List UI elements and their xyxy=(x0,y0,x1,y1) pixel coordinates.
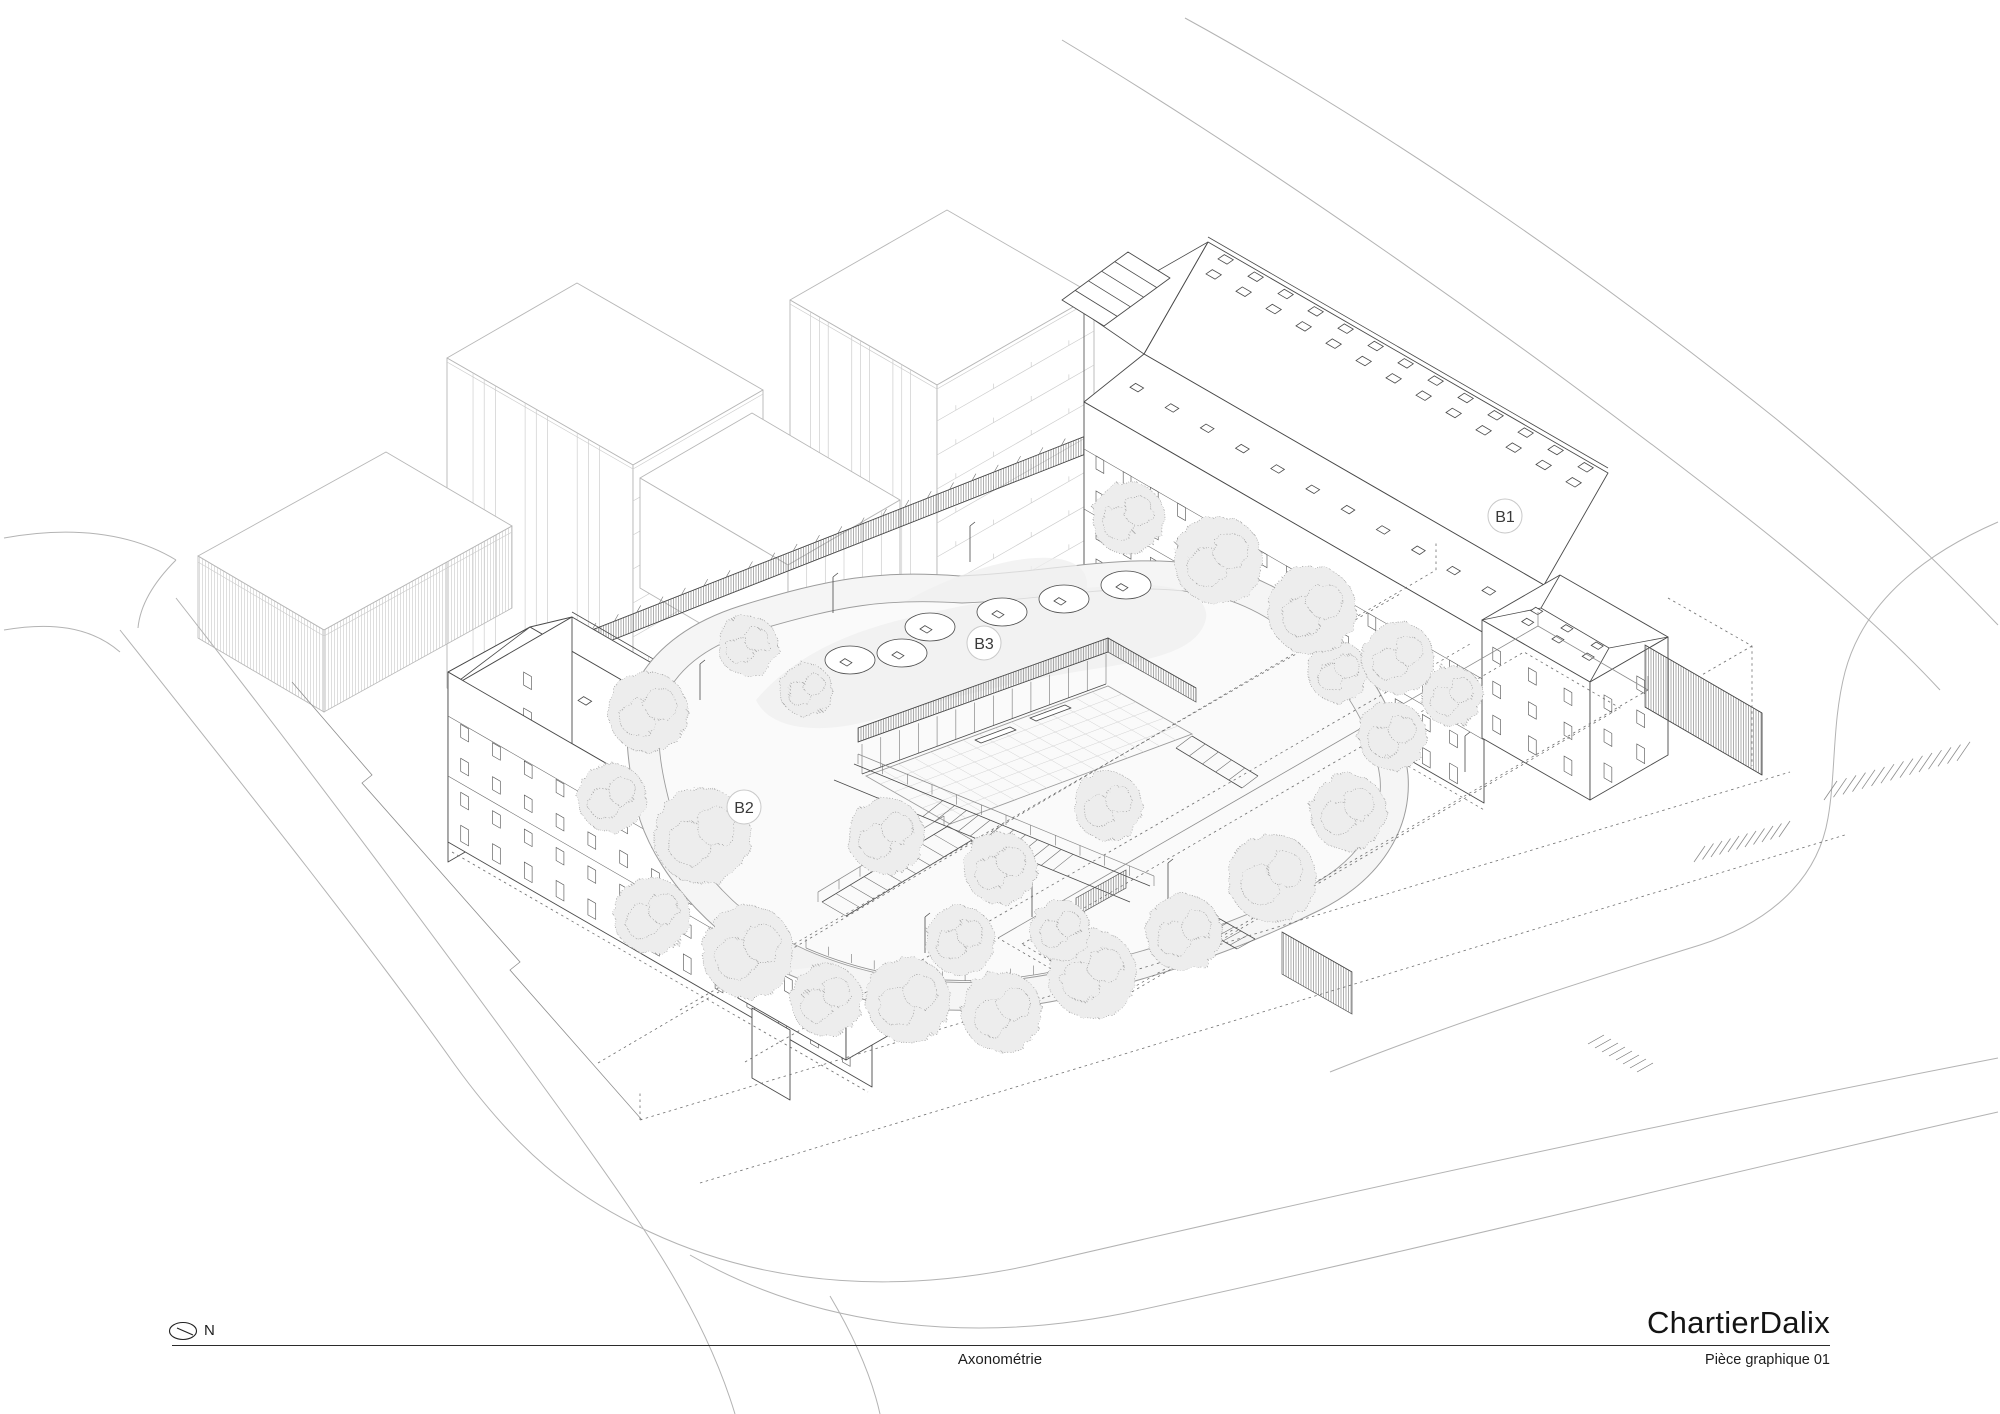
drawing-sheet: B1 B2 B3 N Axonométrie ChartierDalix Piè… xyxy=(0,0,2000,1414)
north-arrow-icon xyxy=(168,1318,228,1348)
drawing-caption: Axonométrie xyxy=(0,1351,2000,1368)
sheet-number: Pièce graphique 01 xyxy=(1705,1352,1830,1368)
building-label-b2: B2 xyxy=(727,790,761,824)
firm-logotype: ChartierDalix xyxy=(1647,1305,1830,1341)
titleblock-rule xyxy=(172,1345,1830,1346)
site-linework xyxy=(4,18,1998,1414)
label-text-b1: B1 xyxy=(1495,509,1515,526)
north-label: N xyxy=(204,1322,215,1339)
label-text-b2: B2 xyxy=(734,800,754,817)
building-label-b3: B3 xyxy=(967,626,1001,660)
label-text-b3: B3 xyxy=(974,636,994,653)
building-label-b1: B1 xyxy=(1488,499,1522,533)
axonometric-drawing: B1 B2 B3 xyxy=(0,0,2000,1414)
